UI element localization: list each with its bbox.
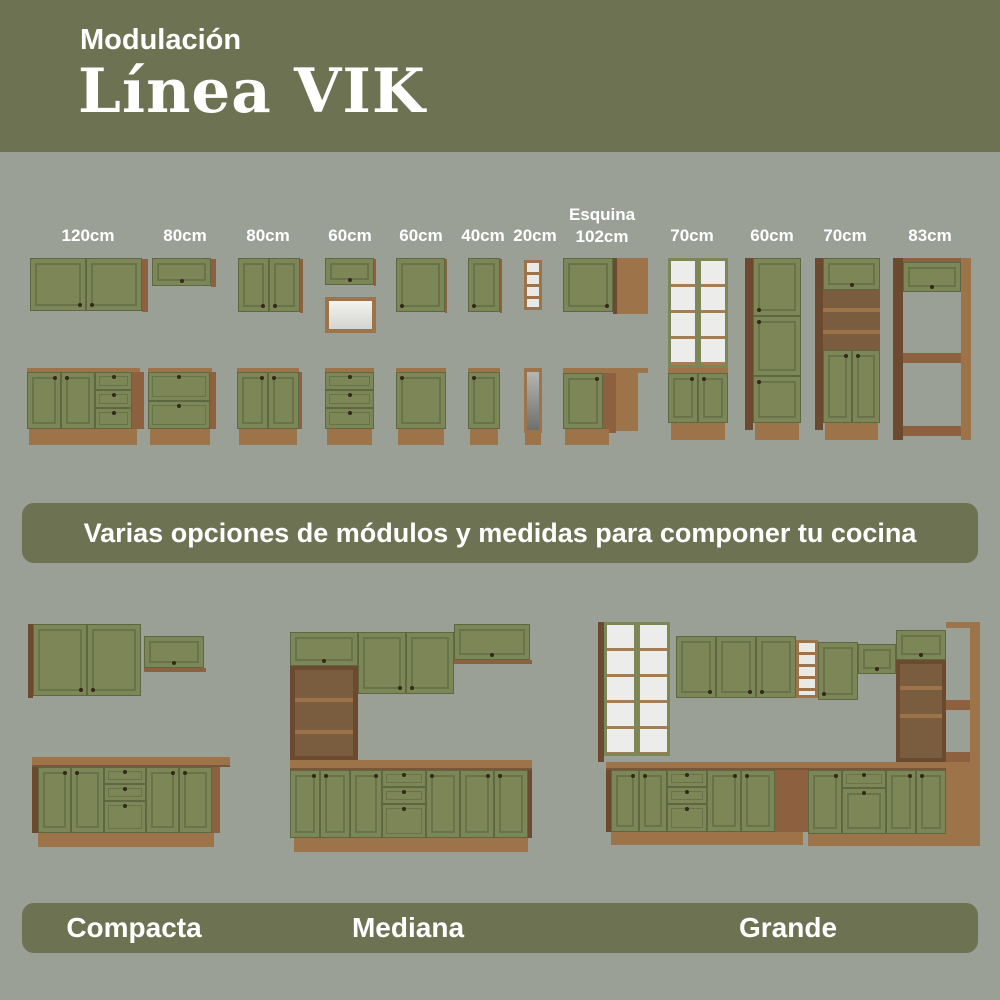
module-upper-120cm <box>30 258 148 313</box>
kitchen-label-compacta: Compacta <box>66 903 201 953</box>
module-tall-70cm-oven-tower <box>815 258 880 440</box>
modules-banner: Varias opciones de módulos y medidas par… <box>22 503 978 563</box>
kitchen-label-mediana: Mediana <box>352 903 464 953</box>
toe-kick <box>470 429 498 445</box>
module-tall-70cm-glass-hutch <box>668 258 728 440</box>
toe-kick <box>38 833 214 847</box>
corner-wood-edge <box>613 258 617 314</box>
door <box>563 373 603 429</box>
drawer <box>842 770 886 788</box>
size-label-80cm-a: 80cm <box>163 226 206 246</box>
drawer <box>325 408 374 429</box>
door <box>823 350 852 423</box>
side-panel <box>374 259 376 286</box>
flip-door <box>896 630 946 660</box>
drawer <box>667 804 707 832</box>
door <box>698 373 728 423</box>
side-panel <box>500 259 502 313</box>
toe-kick <box>611 832 803 845</box>
side-panel <box>142 259 148 312</box>
door <box>639 770 667 832</box>
module-tall-60cm-pantry <box>745 258 801 440</box>
side-panel <box>745 258 753 430</box>
drawer <box>325 390 374 408</box>
size-label-esquina-line2: 102cm <box>576 227 629 246</box>
corner-wood-box <box>613 258 648 314</box>
size-label-esquina: Esquina 102cm <box>569 204 635 248</box>
drawer <box>104 784 146 801</box>
door <box>358 632 406 694</box>
glass-door <box>604 622 637 756</box>
door <box>494 770 528 838</box>
size-label-60cm-a: 60cm <box>328 226 371 246</box>
door <box>87 624 141 696</box>
flip-door <box>144 636 204 668</box>
flip-door <box>290 632 358 666</box>
counter <box>32 757 230 767</box>
side-panel <box>445 259 447 313</box>
cross-shelf <box>946 700 970 710</box>
door <box>611 770 639 832</box>
toe-kick <box>755 423 799 440</box>
pullout-interior <box>527 372 539 430</box>
side-panel <box>210 372 216 429</box>
glass-door <box>637 622 670 756</box>
side-panel <box>300 259 303 313</box>
shelf <box>295 698 353 702</box>
toe-kick <box>525 433 541 445</box>
door <box>753 258 801 316</box>
kitchen-label-grande: Grande <box>739 903 837 953</box>
corner-filler <box>775 770 808 832</box>
module-upper-40cm-door <box>468 258 502 313</box>
door <box>716 636 756 698</box>
door <box>27 372 61 429</box>
door <box>320 770 350 838</box>
door <box>71 767 104 833</box>
module-upper-20cm-shelves <box>524 260 542 310</box>
shelf-unit <box>524 260 542 310</box>
kitchen-mediana <box>288 610 536 852</box>
size-label-60cm-b: 60cm <box>399 226 442 246</box>
door <box>268 372 299 429</box>
door <box>396 372 446 429</box>
toe-kick <box>294 838 528 852</box>
door <box>468 258 500 312</box>
door <box>290 770 320 838</box>
shelf <box>295 730 353 734</box>
door <box>146 767 179 833</box>
shelf <box>900 714 942 718</box>
counter <box>606 762 808 770</box>
door <box>468 372 500 429</box>
infographic-page: Modulación Línea VIK 120cm 80cm 80cm 60c… <box>0 0 1000 1000</box>
flip-door <box>325 258 374 285</box>
counter <box>290 760 532 770</box>
toe-kick <box>239 429 297 445</box>
drawer <box>95 372 132 390</box>
page-title: Línea VIK <box>78 56 426 127</box>
door <box>707 770 741 832</box>
kitchens-banner: Compacta Mediana Grande <box>22 903 978 953</box>
door <box>406 632 454 694</box>
module-base-80cm-drawers <box>148 368 216 445</box>
flip-door <box>152 258 211 286</box>
door <box>460 770 494 838</box>
open-shelf-unit <box>796 640 818 698</box>
size-label-60cm-c: 60cm <box>750 226 793 246</box>
drawer <box>667 770 707 787</box>
shelf <box>823 308 880 312</box>
open-niche <box>329 301 372 329</box>
module-upper-60cm-door <box>396 258 447 313</box>
drawer <box>382 804 426 838</box>
module-base-40cm-door <box>468 368 502 445</box>
toe-kick <box>327 429 372 445</box>
open-compartment <box>823 290 880 350</box>
module-base-120cm <box>27 368 144 445</box>
drawer <box>104 801 146 833</box>
flip-door <box>903 262 961 292</box>
side-panel <box>528 770 532 838</box>
door <box>86 258 142 311</box>
door <box>269 258 300 312</box>
top-panel <box>946 622 970 628</box>
door <box>38 767 71 833</box>
toe-kick <box>671 423 725 440</box>
glass-door <box>698 258 728 368</box>
kitchen-compacta <box>20 612 245 852</box>
door <box>753 316 801 376</box>
size-label-120cm: 120cm <box>62 226 115 246</box>
side-panel <box>815 258 823 430</box>
cross-shelf <box>903 353 961 363</box>
drawer <box>382 787 426 804</box>
door <box>916 770 946 834</box>
module-base-20cm-pullout <box>524 368 542 445</box>
side-panel <box>893 258 903 440</box>
side-panel <box>132 372 144 429</box>
toe-kick <box>808 834 946 846</box>
flip-door <box>858 644 896 674</box>
drawer <box>95 390 132 408</box>
side-panel <box>299 372 302 429</box>
door <box>741 770 775 832</box>
module-base-60cm-drawers <box>325 368 376 445</box>
folded-panel <box>616 373 638 431</box>
door <box>61 372 95 429</box>
bottom-shelf <box>903 426 961 436</box>
size-label-80cm-b: 80cm <box>246 226 289 246</box>
door <box>33 624 87 696</box>
side-panel <box>212 767 220 833</box>
toe-kick <box>29 429 137 445</box>
module-base-esquina-102cm <box>563 368 648 445</box>
door <box>30 258 86 311</box>
size-label-40cm: 40cm <box>461 226 504 246</box>
drawer <box>148 401 210 429</box>
shelf <box>900 686 942 690</box>
size-label-20cm: 20cm <box>513 226 556 246</box>
door <box>818 642 858 700</box>
drawer <box>325 372 374 390</box>
module-upper-80cm-doors <box>238 258 303 313</box>
door <box>179 767 212 833</box>
size-label-83cm: 83cm <box>908 226 951 246</box>
size-label-70cm-a: 70cm <box>670 226 713 246</box>
bottom-shelf <box>946 752 970 762</box>
toe-kick <box>398 429 444 445</box>
open-compartment <box>295 670 353 756</box>
door <box>350 770 382 838</box>
modules-banner-text: Varias opciones de módulos y medidas par… <box>22 503 978 563</box>
drawer <box>95 408 132 429</box>
door <box>676 636 716 698</box>
header-kicker: Modulación <box>80 24 241 57</box>
door <box>668 373 698 423</box>
door <box>563 258 613 312</box>
flip-door <box>823 258 880 290</box>
kitchen-grande <box>594 606 988 858</box>
shelf <box>823 330 880 334</box>
door <box>396 258 445 312</box>
shelf <box>454 660 532 664</box>
door <box>237 372 268 429</box>
side-panel <box>961 258 971 440</box>
door <box>426 770 460 838</box>
side-panel <box>211 259 216 287</box>
header: Modulación Línea VIK <box>0 0 1000 152</box>
toe-kick <box>150 429 210 445</box>
module-upper-60cm-flip-niche <box>325 258 376 333</box>
door <box>808 770 842 834</box>
size-label-70cm-b: 70cm <box>823 226 866 246</box>
module-base-80cm-doors <box>237 368 302 445</box>
drawer <box>148 372 210 401</box>
glass-door <box>668 258 698 368</box>
module-tall-83cm-fridge-surround <box>893 258 971 440</box>
drawer <box>667 787 707 804</box>
door <box>852 350 880 423</box>
folded-panel <box>603 373 616 433</box>
toe-kick <box>825 423 878 440</box>
door <box>756 636 796 698</box>
size-label-esquina-line1: Esquina <box>569 205 635 224</box>
toe-kick <box>565 429 609 445</box>
module-upper-80cm-flip <box>152 258 216 288</box>
fridge-base-panel <box>946 762 978 846</box>
door <box>842 788 886 834</box>
flip-door <box>454 624 530 660</box>
door <box>238 258 269 312</box>
open-compartment <box>900 664 942 758</box>
shelf <box>144 668 206 672</box>
module-upper-esquina-102cm <box>563 258 648 314</box>
door <box>753 376 801 423</box>
module-base-60cm-door <box>396 368 448 445</box>
drawer <box>104 767 146 784</box>
door <box>886 770 916 834</box>
drawer <box>382 770 426 787</box>
